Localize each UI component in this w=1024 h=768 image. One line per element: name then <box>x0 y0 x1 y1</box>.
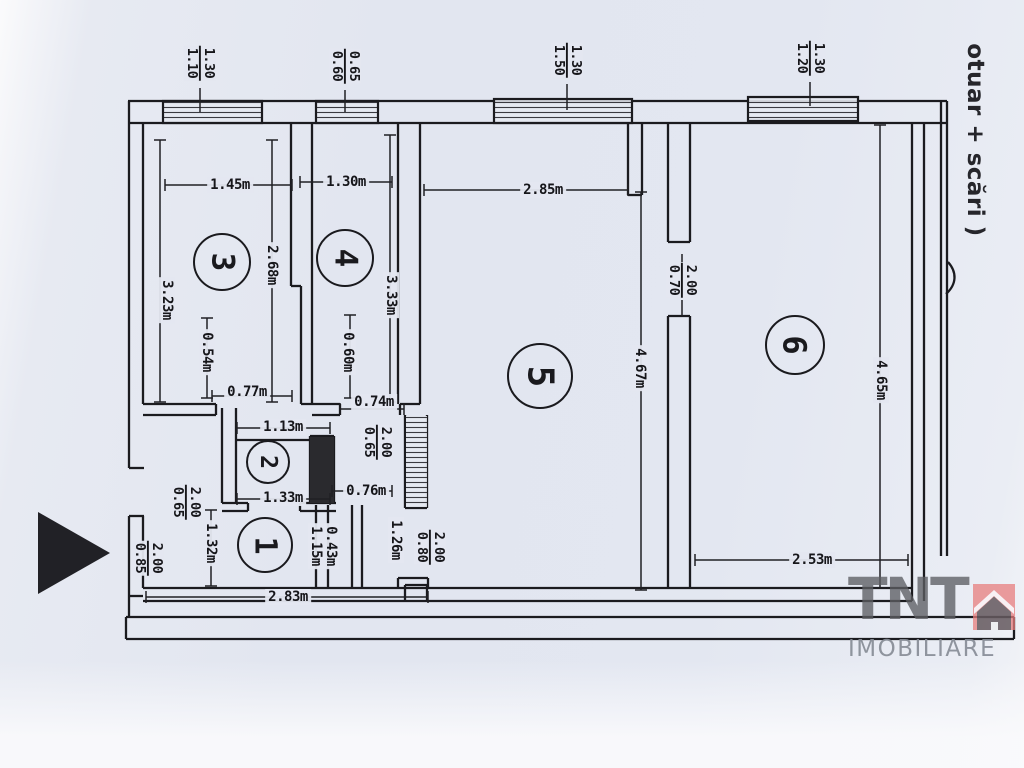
room-number-circle: 1 <box>237 517 293 573</box>
room-number: 3 <box>204 253 240 272</box>
opening-width: 1.50 <box>551 43 566 78</box>
h-dimension-label: 2.83m <box>265 589 311 605</box>
opening-width: 1.20 <box>794 41 809 76</box>
opening-height: 2.00 <box>681 263 698 298</box>
v-dimension-label: 3.23m <box>159 277 175 323</box>
opening-size-label: 2.000.65 <box>361 425 393 460</box>
opening-size-label: 1.301.50 <box>551 43 583 78</box>
opening-width: 1.10 <box>184 46 199 81</box>
room-number-circle: 3 <box>193 233 251 291</box>
opening-size-label: 1.301.10 <box>184 46 216 81</box>
dimension-line <box>154 140 166 402</box>
h-dimension-label: 0.77m <box>224 384 270 400</box>
window <box>316 101 378 123</box>
v-dimension-label: 0.60m <box>340 329 356 375</box>
v-dimension-label: 1.32m <box>203 520 219 566</box>
v-dimension-label: 0.43m <box>323 523 339 569</box>
opening-width: 0.60 <box>329 49 344 84</box>
v-dimension-label: 3.33m <box>383 272 399 318</box>
opening-width: 0.80 <box>414 530 429 565</box>
opening-width: 0.65 <box>170 485 185 520</box>
room-number: 6 <box>776 335 814 354</box>
logo-brand-text: TNT <box>848 572 967 627</box>
floor-plan-scan: 1.45m1.30m2.85m0.77m0.74m1.13m1.33m0.76m… <box>0 0 1024 768</box>
opening-size-label: 1.301.20 <box>794 41 826 76</box>
h-dimension-label: 0.76m <box>343 483 389 499</box>
opening-width: 0.70 <box>666 263 681 298</box>
opening-height: 1.30 <box>809 41 826 76</box>
room-number-circle: 2 <box>246 440 290 484</box>
opening-height: 1.30 <box>566 43 583 78</box>
opening-height: 2.00 <box>147 541 164 576</box>
opening-size-label: 2.000.65 <box>170 485 202 520</box>
h-dimension-label: 1.30m <box>323 174 369 190</box>
opening-height: 2.00 <box>185 485 202 520</box>
v-dimension-label: 1.15m <box>308 523 324 569</box>
opening-size-label: 2.000.70 <box>666 263 698 298</box>
window <box>494 99 632 123</box>
h-dimension-label: 1.45m <box>207 177 253 193</box>
opening-height: 0.65 <box>344 49 361 84</box>
entrance-arrow <box>38 512 110 594</box>
h-dimension-label: 1.33m <box>260 490 306 506</box>
room-number-circle: 5 <box>507 343 573 409</box>
h-dimension-label: 1.13m <box>260 419 306 435</box>
opening-width: 0.65 <box>361 425 376 460</box>
logo-subtitle: IMOBILIARE <box>848 636 1024 662</box>
v-dimension-label: 4.65m <box>873 357 889 403</box>
window <box>163 101 262 123</box>
v-dimension-label: 4.67m <box>632 345 648 391</box>
opening-size-label: 2.000.85 <box>132 541 164 576</box>
h-dimension-label: 0.74m <box>351 394 397 410</box>
room-number: 4 <box>327 249 363 268</box>
room-number: 1 <box>248 536 283 554</box>
agency-watermark: TNT IMOBILIARE <box>848 572 1024 662</box>
v-dimension-label: 0.54m <box>199 329 215 375</box>
dimension-line <box>384 135 396 402</box>
dimension-line <box>635 192 647 590</box>
room-number-circle: 6 <box>765 315 825 375</box>
opening-size-label: 0.650.60 <box>329 49 361 84</box>
opening-height: 2.00 <box>429 530 446 565</box>
h-dimension-label: 2.85m <box>520 182 566 198</box>
room-number: 2 <box>255 455 281 469</box>
room-number: 5 <box>520 365 561 387</box>
opening-size-label: 2.000.80 <box>414 530 446 565</box>
h-dimension-label: 2.53m <box>789 552 835 568</box>
v-dimension-label: 2.68m <box>264 242 280 288</box>
window <box>748 97 858 121</box>
logo-house-icon <box>973 584 1015 638</box>
v-dimension-label: 1.26m <box>388 517 404 563</box>
opening-height: 2.00 <box>376 425 393 460</box>
wall-fill <box>406 416 427 507</box>
room-number-circle: 4 <box>316 229 374 287</box>
opening-height: 1.30 <box>199 46 216 81</box>
opening-width: 0.85 <box>132 541 147 576</box>
margin-note: otuar + scări ) <box>962 43 988 236</box>
